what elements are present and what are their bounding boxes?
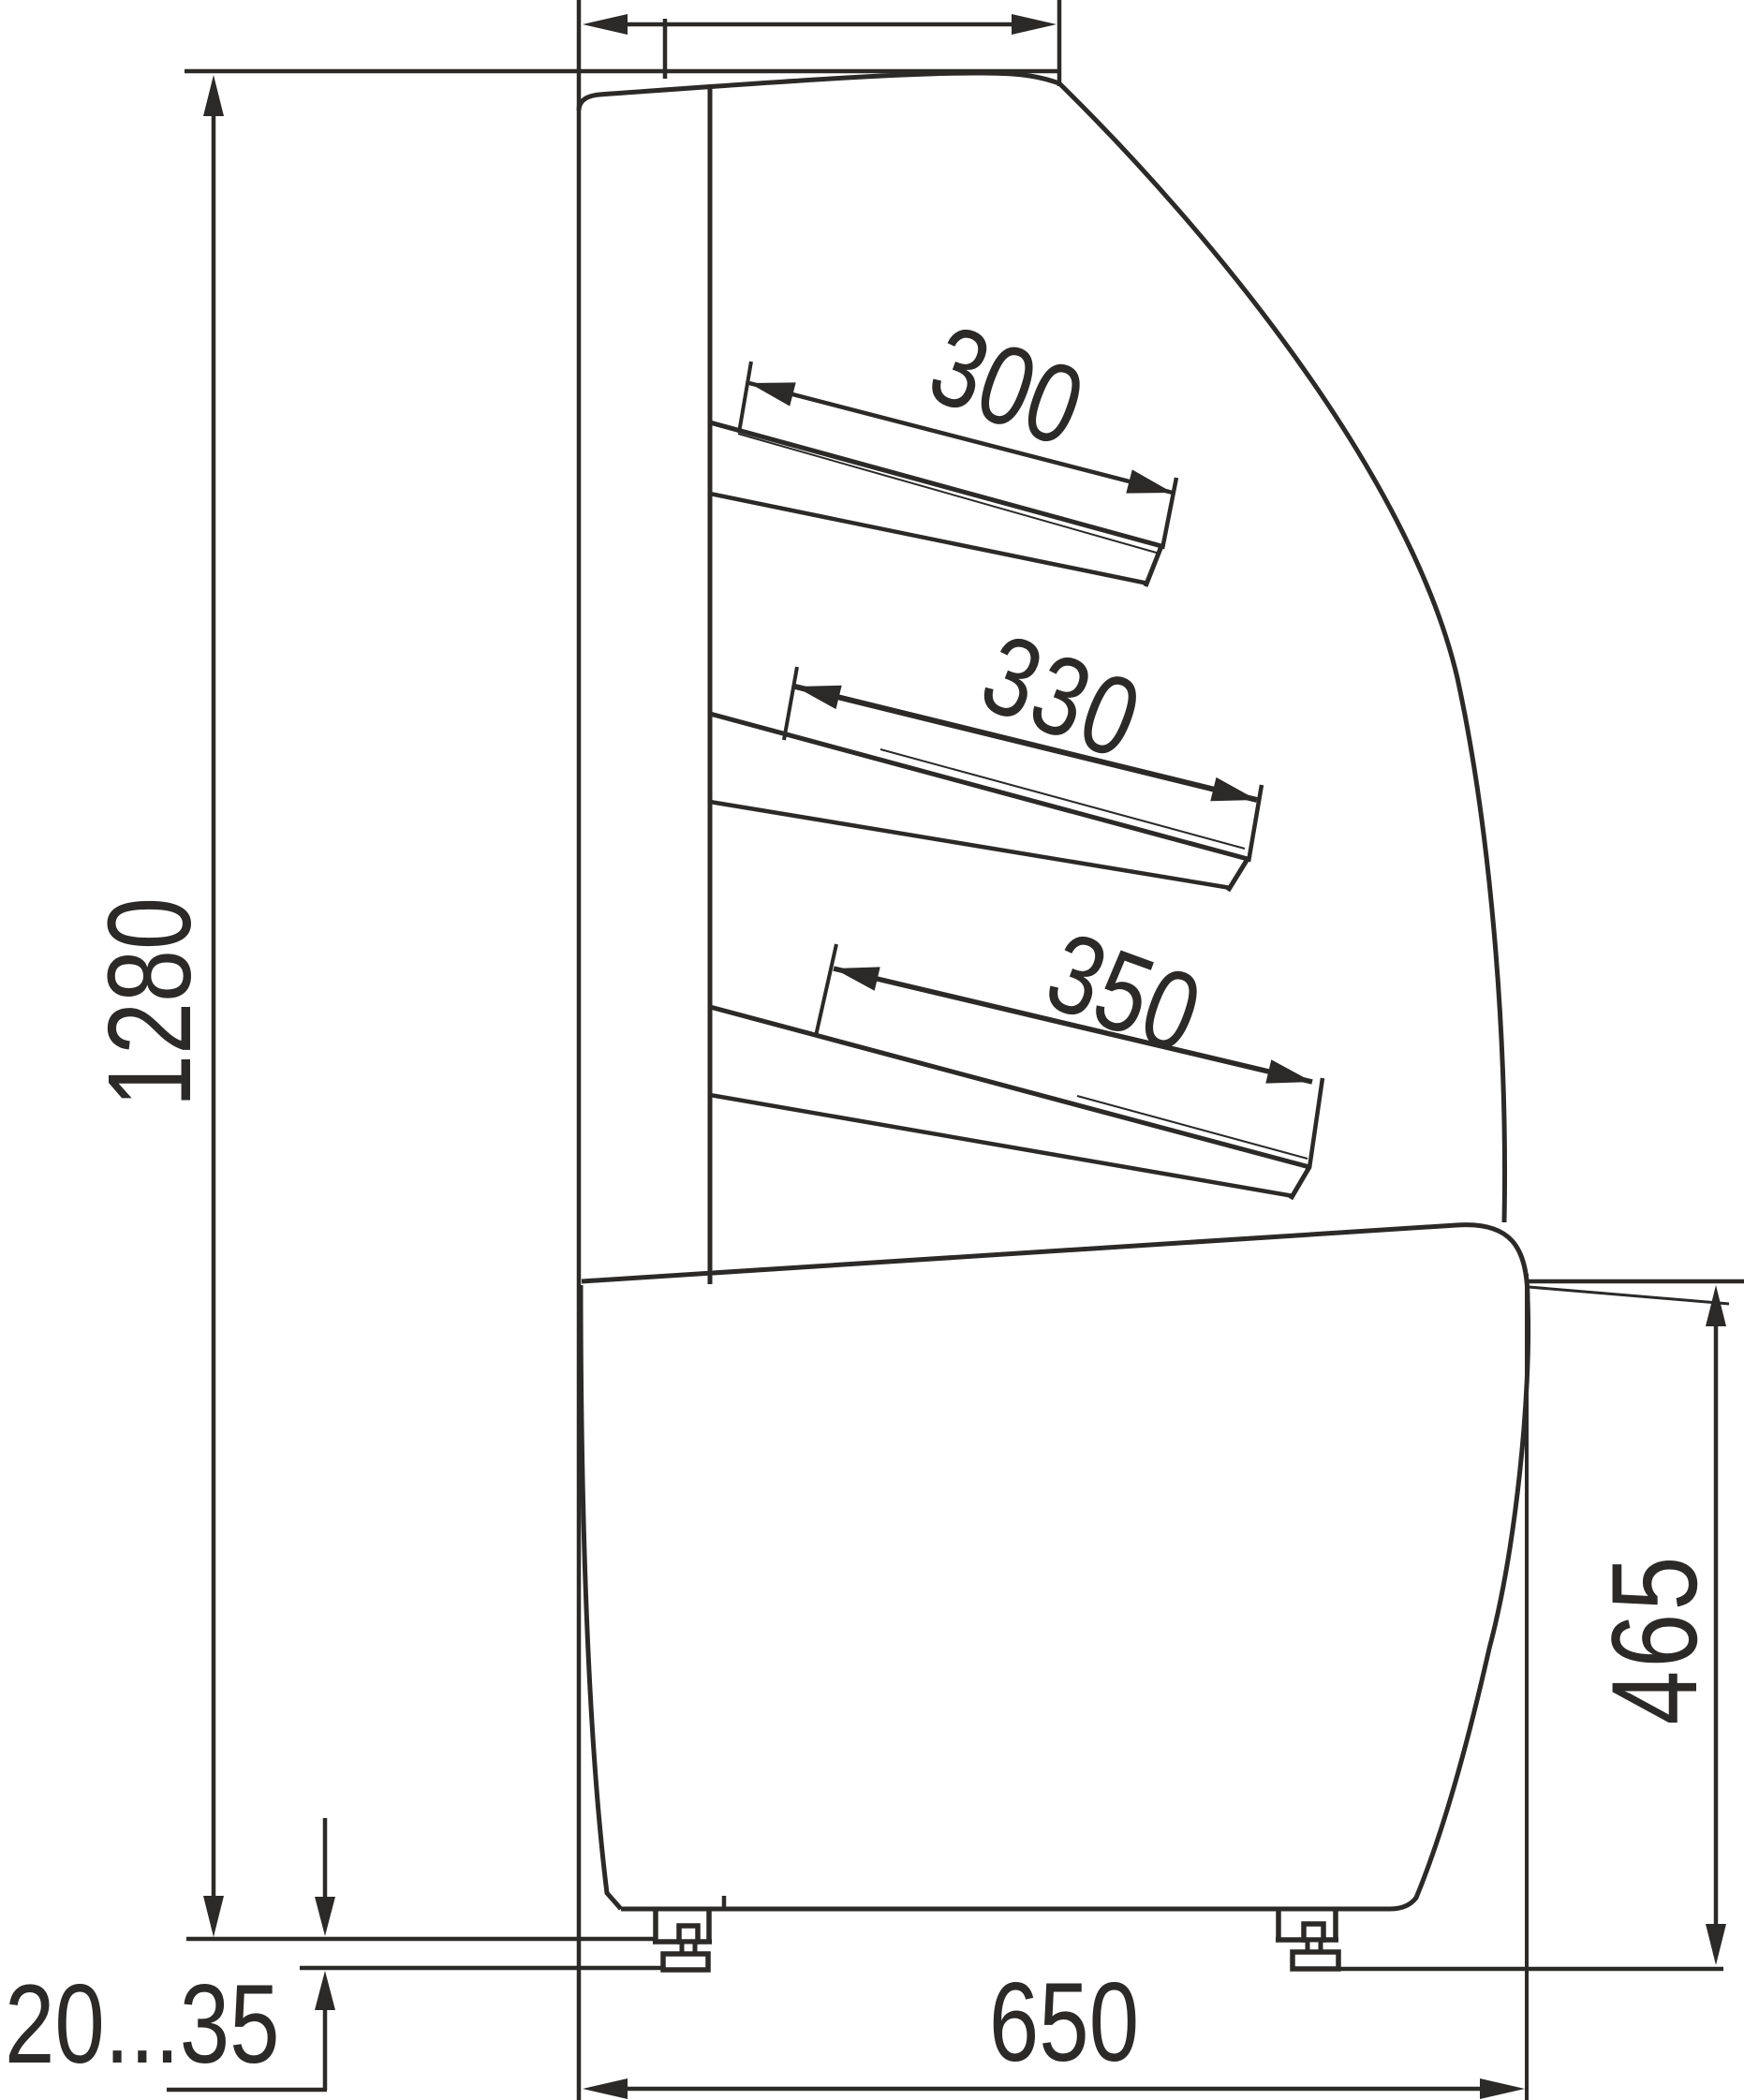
svg-text:20...35: 20...35 xyxy=(5,1962,280,2088)
svg-text:650: 650 xyxy=(989,1960,1139,2086)
svg-text:1280: 1280 xyxy=(84,897,215,1107)
svg-text:465: 465 xyxy=(1586,1553,1722,1724)
